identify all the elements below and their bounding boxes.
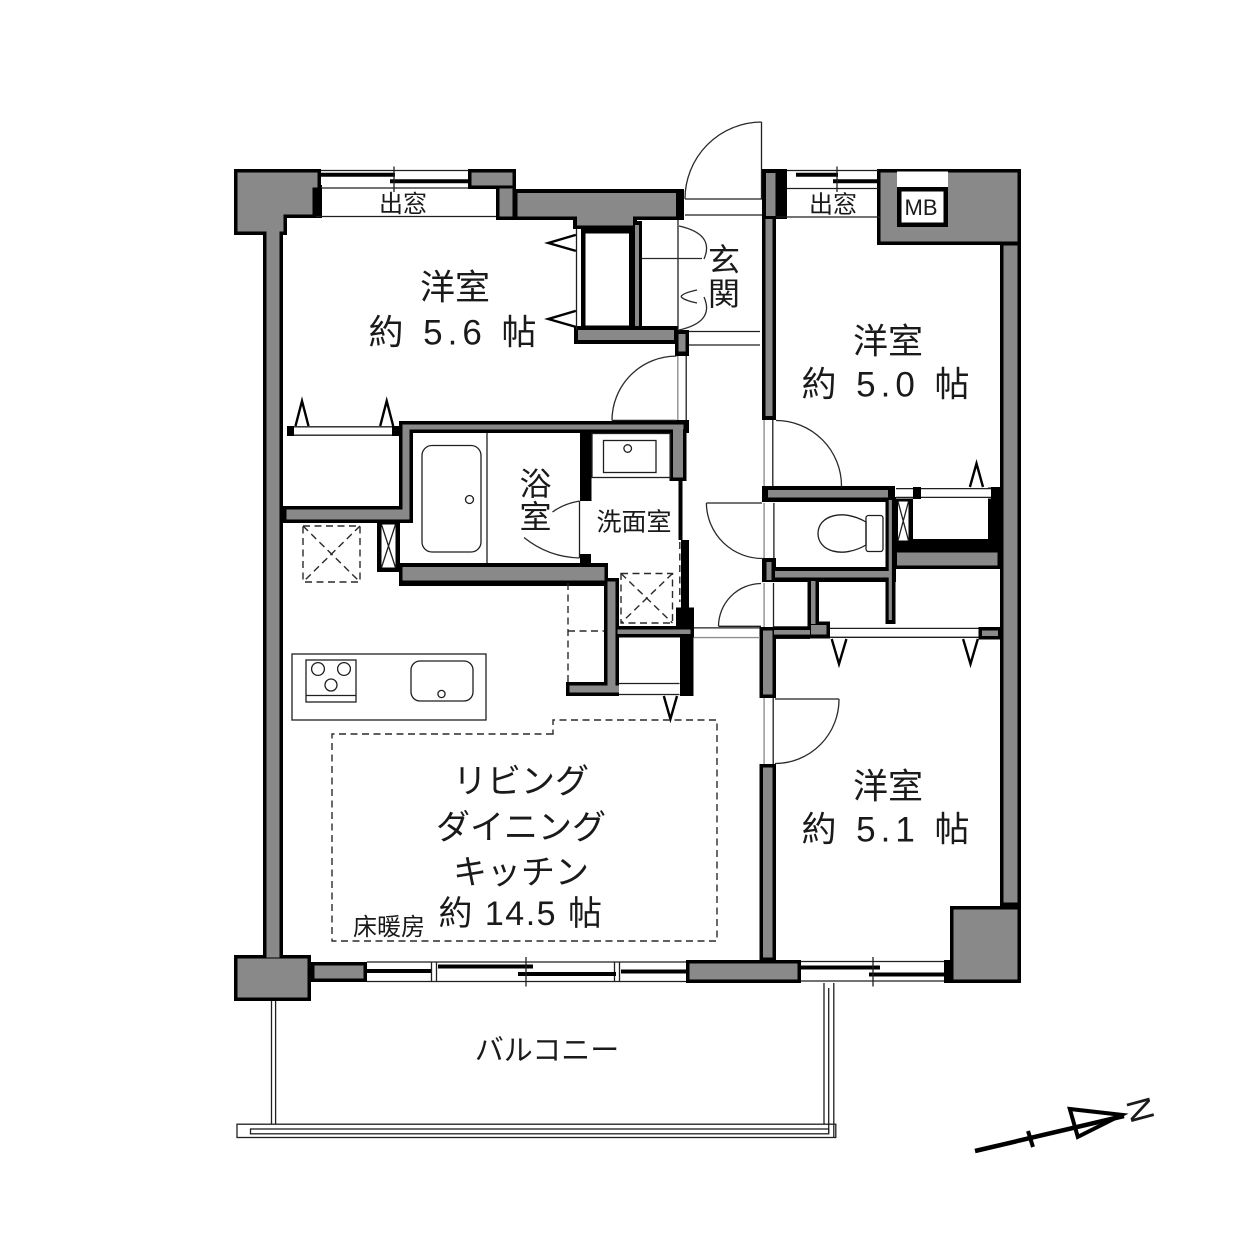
svg-text:洋室: 洋室 <box>853 768 923 807</box>
svg-text:ダイニング: ダイニング <box>436 809 606 847</box>
svg-text:出窓: 出窓 <box>809 192 857 219</box>
svg-text:出窓: 出窓 <box>379 191 427 218</box>
svg-text:バルコニー: バルコニー <box>475 1035 619 1067</box>
svg-text:キッチン: キッチン <box>453 854 589 892</box>
svg-text:玄: 玄 <box>708 242 740 278</box>
svg-text:洗面室: 洗面室 <box>596 509 671 537</box>
svg-text:床暖房: 床暖房 <box>353 914 425 941</box>
svg-text:リビング: リビング <box>453 763 589 801</box>
svg-text:室: 室 <box>519 499 551 535</box>
svg-text:約 5.1 帖: 約 5.1 帖 <box>801 811 974 850</box>
svg-text:約 5.6 帖: 約 5.6 帖 <box>368 314 541 353</box>
svg-text:約 14.5 帖: 約 14.5 帖 <box>438 895 603 933</box>
svg-text:洋室: 洋室 <box>420 269 490 308</box>
svg-text:関: 関 <box>708 276 740 312</box>
svg-text:約 5.0 帖: 約 5.0 帖 <box>801 366 974 405</box>
svg-text:浴: 浴 <box>519 466 551 502</box>
svg-text:洋室: 洋室 <box>853 323 923 362</box>
svg-text:MB: MB <box>905 195 938 220</box>
